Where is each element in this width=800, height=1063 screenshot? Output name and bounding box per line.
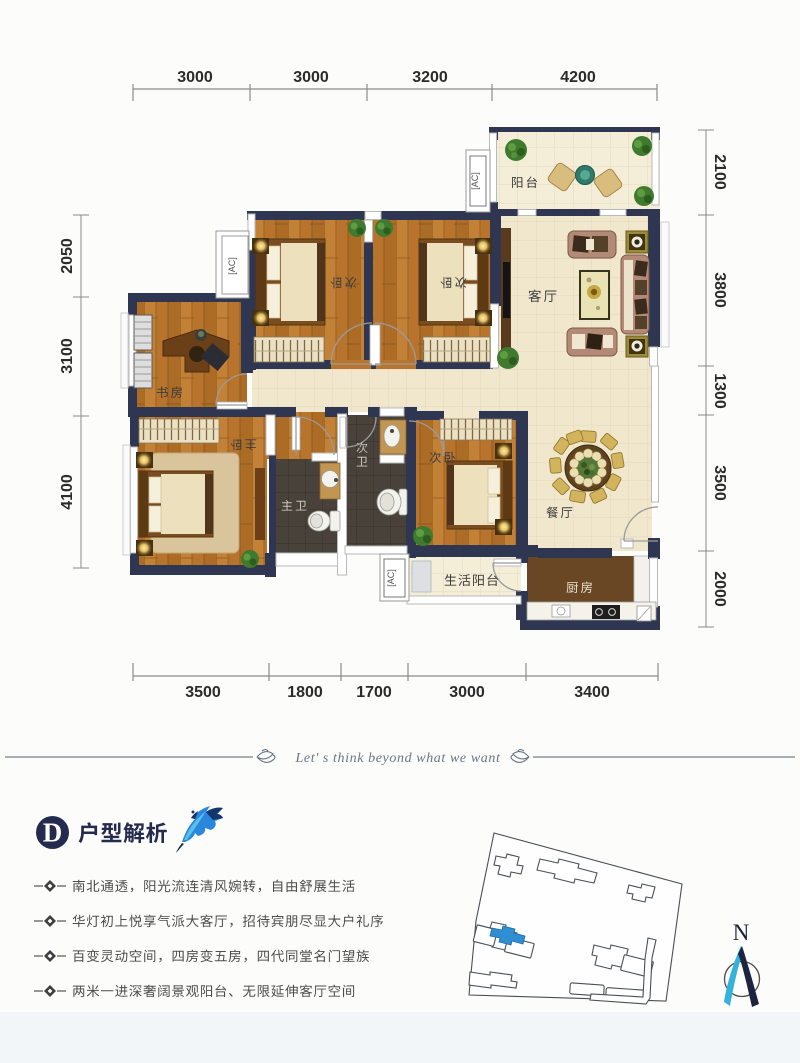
svg-text:3800: 3800 <box>711 272 728 308</box>
svg-text:Let' s think beyond what we wa: Let' s think beyond what we want <box>295 751 501 766</box>
svg-text:3000: 3000 <box>177 69 213 86</box>
svg-text:3000: 3000 <box>293 69 329 86</box>
svg-text:[AC]: [AC] <box>386 569 396 587</box>
svg-text:2050: 2050 <box>59 238 76 274</box>
svg-text:1700: 1700 <box>356 684 392 701</box>
svg-text:[AC]: [AC] <box>227 257 237 275</box>
svg-text:3100: 3100 <box>59 338 76 374</box>
svg-text:1800: 1800 <box>287 684 323 701</box>
svg-text:4200: 4200 <box>560 69 596 86</box>
svg-text:3400: 3400 <box>574 684 610 701</box>
svg-text:3500: 3500 <box>185 684 221 701</box>
svg-text:D: D <box>43 818 63 848</box>
svg-text:2100: 2100 <box>711 154 728 190</box>
svg-text:3200: 3200 <box>412 69 448 86</box>
svg-text:[AC]: [AC] <box>470 172 480 190</box>
svg-text:3500: 3500 <box>711 465 728 501</box>
svg-text:3000: 3000 <box>449 684 485 701</box>
svg-text:4100: 4100 <box>59 474 76 510</box>
svg-text:2000: 2000 <box>711 571 728 607</box>
svg-text:N: N <box>733 920 750 945</box>
svg-text:1300: 1300 <box>711 373 728 409</box>
